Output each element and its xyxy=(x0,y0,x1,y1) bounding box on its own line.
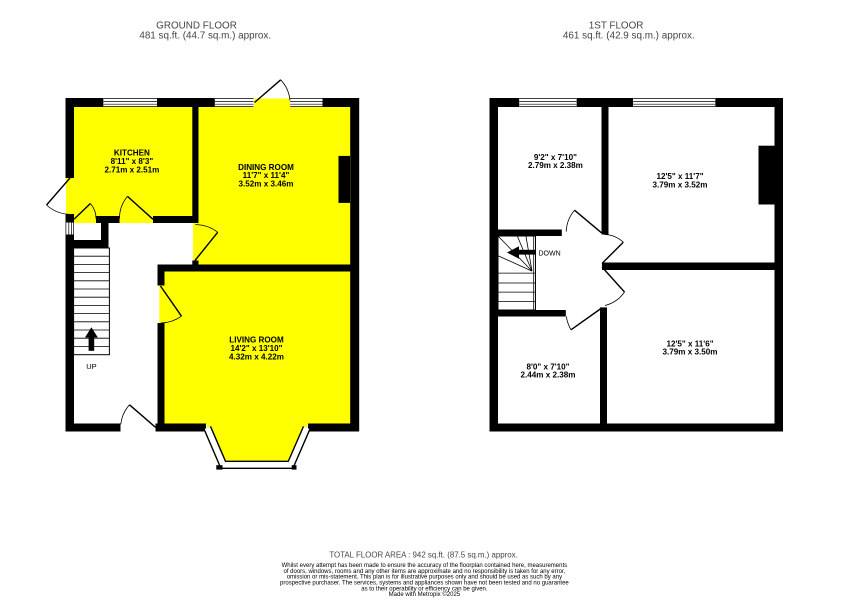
svg-text:TOTAL FLOOR AREA : 942 sq.ft.: TOTAL FLOOR AREA : 942 sq.ft. (87.5 sq.m… xyxy=(329,550,517,559)
svg-text:UP: UP xyxy=(86,362,96,371)
svg-text:3.79m x 3.52m: 3.79m x 3.52m xyxy=(653,180,708,189)
svg-text:DOWN: DOWN xyxy=(539,250,561,257)
svg-text:3.52m x 3.46m: 3.52m x 3.46m xyxy=(239,179,294,188)
svg-text:3.79m x 3.50m: 3.79m x 3.50m xyxy=(663,348,718,357)
svg-text:2.79m x 2.38m: 2.79m x 2.38m xyxy=(528,161,583,170)
svg-text:461 sq.ft. (42.9 sq.m.) approx: 461 sq.ft. (42.9 sq.m.) approx. xyxy=(563,30,695,41)
svg-text:2.71m x 2.51m: 2.71m x 2.51m xyxy=(104,165,159,174)
svg-text:Made with Metropix ©2025: Made with Metropix ©2025 xyxy=(389,591,461,598)
svg-text:4.32m x 4.22m: 4.32m x 4.22m xyxy=(229,352,284,361)
svg-text:2.44m x 2.38m: 2.44m x 2.38m xyxy=(521,371,576,380)
svg-text:481 sq.ft. (44.7 sq.m.) approx: 481 sq.ft. (44.7 sq.m.) approx. xyxy=(139,30,271,41)
